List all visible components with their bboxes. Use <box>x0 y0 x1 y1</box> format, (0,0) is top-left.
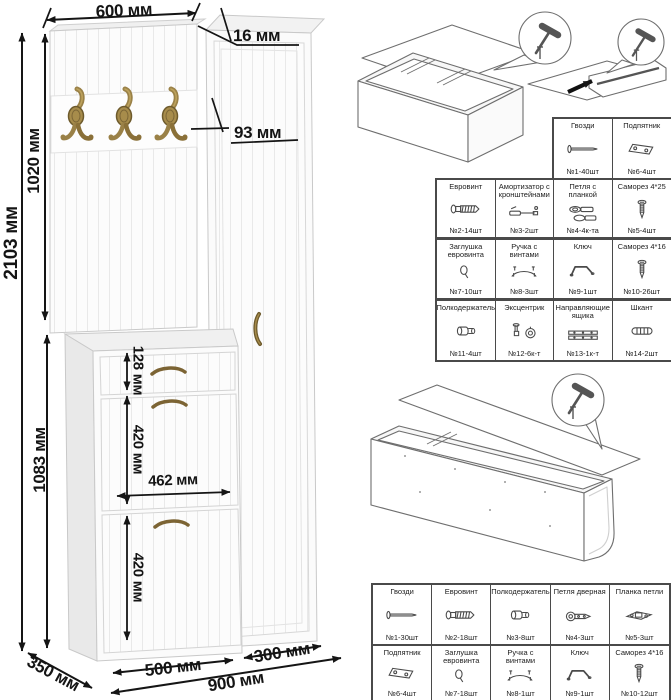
door-hinge-icon <box>558 605 602 625</box>
parts-cell: Шкант №14-2шт <box>613 301 671 360</box>
hex-key-icon <box>561 259 605 279</box>
part-title: Полкодержатель <box>491 588 549 596</box>
parts-cell: Амортизатор с кронштейнами №3-2шт <box>496 180 555 237</box>
part-title: Саморез 4*16 <box>615 649 663 657</box>
dim-total-height-label: 2103 мм <box>1 203 23 283</box>
part-qty: №8-3шт <box>510 287 538 296</box>
drawer-slides-icon <box>561 325 605 345</box>
part-title: Ручка с винтами <box>497 243 553 260</box>
part-qty: №3-8шт <box>506 633 534 642</box>
upper-parts-table-row4: Полкодержатель №11-4шт Эксцентрик №12-6к… <box>435 299 671 362</box>
part-qty: №10-12шт <box>621 689 658 698</box>
part-title: Шкант <box>631 304 653 312</box>
dim-top-width-label: 600 мм <box>89 0 160 23</box>
parts-cell: Планка петли №5-3шт <box>610 585 669 644</box>
part-title: Евровинт <box>445 588 478 596</box>
parts-cell: Полкодержатель №3-8шт <box>491 585 550 644</box>
part-qty: №11-4шт <box>450 349 482 358</box>
nail-icon <box>561 139 605 159</box>
upper-parts-table-row1: Гвозди №1-40шт Подпятник №6-4шт <box>552 117 671 180</box>
parts-cell: Ключ №9-1шт <box>551 646 610 700</box>
part-title: Гвозди <box>390 588 413 596</box>
dim-lower-door-height-label: 420 мм <box>130 543 147 613</box>
dim-panel-thickness-label: 16 мм <box>233 26 280 46</box>
part-qty: №10-26шт <box>623 287 660 296</box>
part-qty: №9-1шт <box>569 287 597 296</box>
wall-panel <box>50 19 205 333</box>
part-title: Полкодержатель <box>437 304 495 312</box>
part-title: Эксцентрик <box>504 304 544 312</box>
screw-icon <box>617 663 661 683</box>
part-qty: №5-4шт <box>628 226 656 235</box>
shelf-pin-icon <box>498 605 542 625</box>
parts-cell: Направляющие ящика №13-1к-т <box>554 301 613 360</box>
shelf-pin-icon <box>444 321 488 341</box>
parts-cell: Гвозди №1-30шт <box>373 585 432 644</box>
dim-lower-height-label: 1083 мм <box>30 420 50 500</box>
dim-inner-width-label: 462 мм <box>138 471 209 490</box>
part-title: Ключ <box>571 649 589 657</box>
dim-upper-height-label: 1020 мм <box>24 121 44 201</box>
parts-cell: Заглушка евровинта №7-18шт <box>432 646 491 700</box>
part-qty: №4-3шт <box>566 633 594 642</box>
part-title: Заглушка евровинта <box>433 649 489 666</box>
screw-icon <box>620 259 664 279</box>
screw-cap-icon <box>444 263 488 283</box>
part-title: Планка петли <box>616 588 664 596</box>
part-title: Саморез 4*25 <box>618 183 666 191</box>
handle-icon <box>502 263 546 283</box>
screw-cap-icon <box>439 667 483 687</box>
part-qty: №9-1шт <box>566 689 594 698</box>
parts-cell: Петля дверная №4-3шт <box>551 585 610 644</box>
nail-icon <box>380 605 424 625</box>
parts-cell: Гвозди №1-40шт <box>554 119 613 178</box>
part-qty: №13-1к-т <box>567 349 599 358</box>
part-qty: №12-6к-т <box>508 349 540 358</box>
cam-lock-icon <box>502 321 546 341</box>
part-qty: №7-10шт <box>449 287 482 296</box>
parts-cell: Саморез 4*16 №10-26шт <box>613 240 671 298</box>
hinge-with-plate-icon <box>561 203 605 223</box>
lower-parts-table-row2: Подпятник №6-4шт Заглушка евровинта №7-1… <box>371 644 671 700</box>
part-title: Саморез 4*16 <box>618 243 666 251</box>
lower-parts-table-row1: Гвозди №1-30шт Евровинт №2-18шт Полкодер… <box>371 583 671 646</box>
part-qty: №14-2шт <box>625 349 658 358</box>
gas-lift-icon <box>502 203 546 223</box>
part-title: Ручка с винтами <box>492 649 548 666</box>
parts-cell: Заглушка евровинта №7-10шт <box>437 240 496 298</box>
hinge-plate-icon <box>617 605 661 625</box>
part-qty: №6-4шт <box>388 689 416 698</box>
part-title: Направляющие ящика <box>555 304 611 321</box>
parts-cell: Ключ №9-1шт <box>554 240 613 298</box>
assembly-sketch-top-cabinet <box>371 374 640 561</box>
hex-key-icon <box>558 663 602 683</box>
confirmat-screw-icon <box>439 605 483 625</box>
parts-cell: Петля с планкой №4-4к-та <box>554 180 613 237</box>
part-title: Петля дверная <box>554 588 606 596</box>
furniture-glide-icon <box>620 139 664 159</box>
upper-parts-table-row2: Евровинт №2-14шт Амортизатор с кронштейн… <box>435 178 671 239</box>
part-title: Подпятник <box>384 649 421 657</box>
parts-cell: Саморез 4*25 №5-4шт <box>613 180 671 237</box>
part-title: Заглушка евровинта <box>438 243 494 260</box>
upper-parts-table-row3: Заглушка евровинта №7-10шт Ручка с винта… <box>435 238 671 300</box>
parts-cell: Полкодержатель №11-4шт <box>437 301 496 360</box>
dim-drawer-height-label: 128 мм <box>130 336 147 406</box>
part-title: Евровинт <box>449 183 482 191</box>
part-qty: №8-1шт <box>506 689 534 698</box>
dim-hook-offset-label: 93 мм <box>234 123 281 143</box>
part-title: Подпятник <box>623 122 660 130</box>
parts-cell: Подпятник №6-4шт <box>373 646 432 700</box>
parts-cell: Саморез 4*16 №10-12шт <box>610 646 669 700</box>
part-title: Петля с планкой <box>555 183 611 200</box>
handle-icon <box>498 667 542 687</box>
part-qty: №1-30шт <box>386 633 419 642</box>
part-qty: №4-4к-та <box>567 226 599 235</box>
part-qty: №7-18шт <box>445 689 478 698</box>
confirmat-screw-icon <box>444 199 488 219</box>
parts-cell: Ручка с винтами №8-3шт <box>496 240 555 298</box>
parts-cell: Ручка с винтами №8-1шт <box>491 646 550 700</box>
part-qty: №6-4шт <box>628 167 656 176</box>
screw-icon <box>620 199 664 219</box>
parts-cell: Подпятник №6-4шт <box>613 119 671 178</box>
parts-cell: Эксцентрик №12-6к-т <box>496 301 555 360</box>
part-qty: №5-3шт <box>625 633 653 642</box>
part-qty: №2-18шт <box>445 633 478 642</box>
part-title: Амортизатор с кронштейнами <box>497 183 553 200</box>
part-qty: №1-40шт <box>566 167 599 176</box>
dowel-icon <box>620 321 664 341</box>
parts-cell: Евровинт №2-14шт <box>437 180 496 237</box>
part-qty: №3-2шт <box>510 226 538 235</box>
furniture-glide-icon <box>380 663 424 683</box>
part-title: Ключ <box>574 243 592 251</box>
part-qty: №2-14шт <box>449 226 482 235</box>
assembly-diagram: 600 мм 16 мм 93 мм 2103 мм 1020 мм 1083 … <box>0 0 671 700</box>
part-title: Гвозди <box>571 122 594 130</box>
parts-cell: Евровинт №2-18шт <box>432 585 491 644</box>
